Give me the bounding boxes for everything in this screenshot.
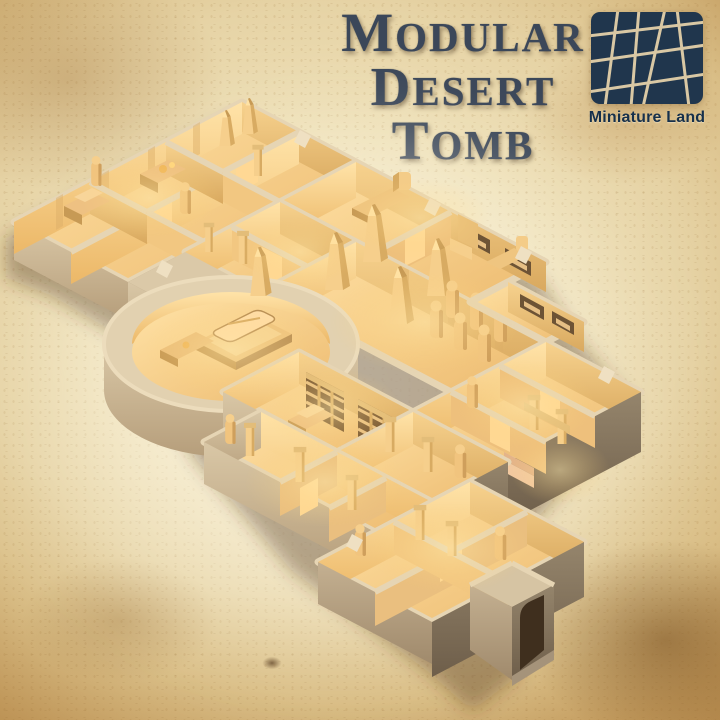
tomb-3d-render [0, 0, 720, 720]
poster: Modular Desert Tomb Miniature Land [0, 0, 720, 720]
